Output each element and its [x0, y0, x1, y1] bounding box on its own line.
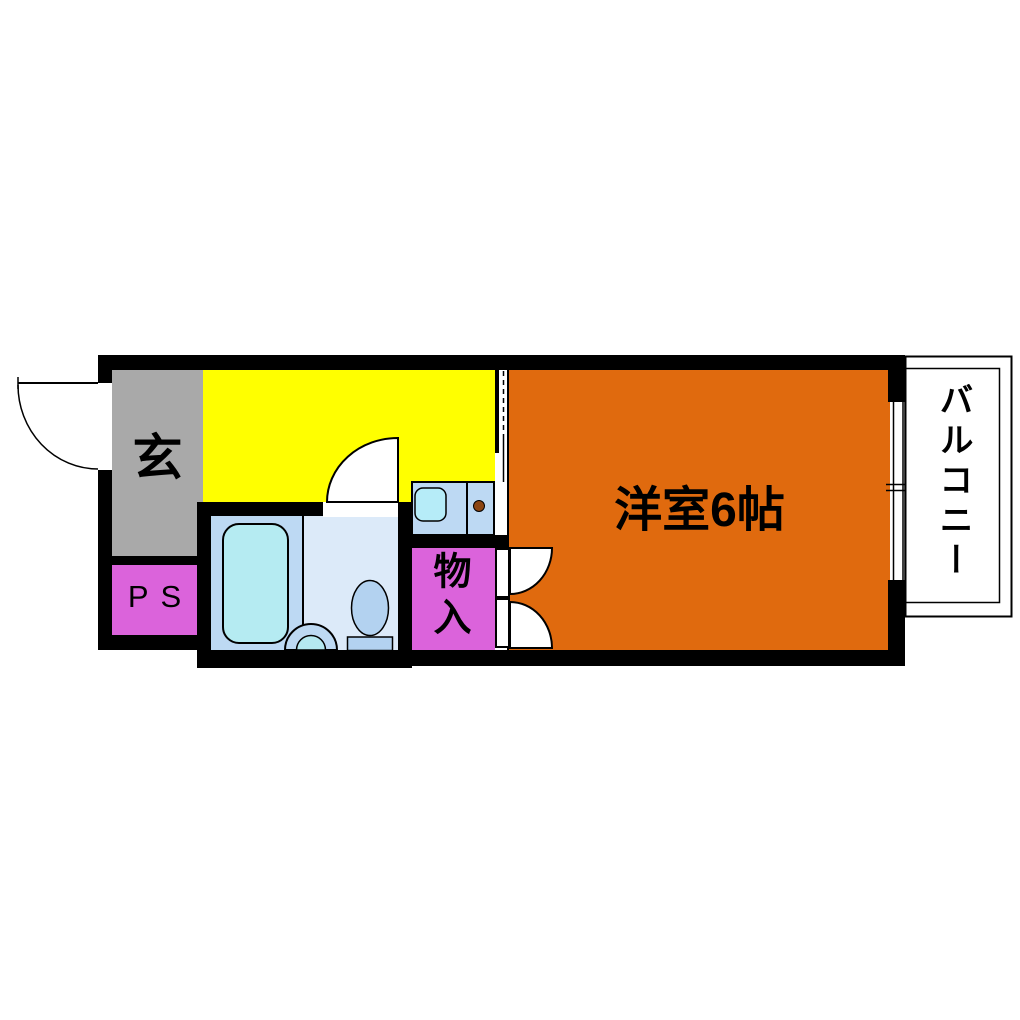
- bathroom-right-panel: [303, 516, 398, 650]
- wall-bottom-main: [197, 650, 905, 666]
- entrance-door-arc: [18, 385, 98, 469]
- wall-bottom-left: [98, 635, 197, 650]
- storage-label: 物入: [429, 551, 467, 643]
- bathroom-left-panel: [211, 516, 303, 650]
- wall-right-upper: [888, 355, 905, 402]
- counter-divider: [466, 483, 468, 534]
- wall-kitchen-stub: [495, 368, 499, 453]
- western-room-label: 洋室6帖: [509, 487, 890, 535]
- kitchen-counter: [411, 481, 495, 536]
- pipe-space-label: PS: [112, 581, 197, 612]
- wall-genkan-ps-divider: [112, 556, 197, 565]
- closet-door-panel-top: [495, 548, 510, 598]
- bathroom-door-opening: [323, 502, 398, 517]
- closet-door-panel-bottom: [495, 598, 510, 648]
- wall-under-counter: [411, 535, 509, 548]
- floorplan-canvas: 玄 PS 物入 洋室6帖 バルコニー: [0, 0, 1020, 1020]
- wall-right-lower: [888, 580, 905, 666]
- entrance-opening: [98, 383, 112, 470]
- balcony-label: バルコニー: [936, 382, 970, 582]
- window-opening: [890, 402, 905, 580]
- wall-left-lower: [98, 470, 112, 650]
- wall-left-upper: [98, 355, 112, 383]
- wall-top: [98, 355, 905, 370]
- genkan-label: 玄: [112, 433, 203, 483]
